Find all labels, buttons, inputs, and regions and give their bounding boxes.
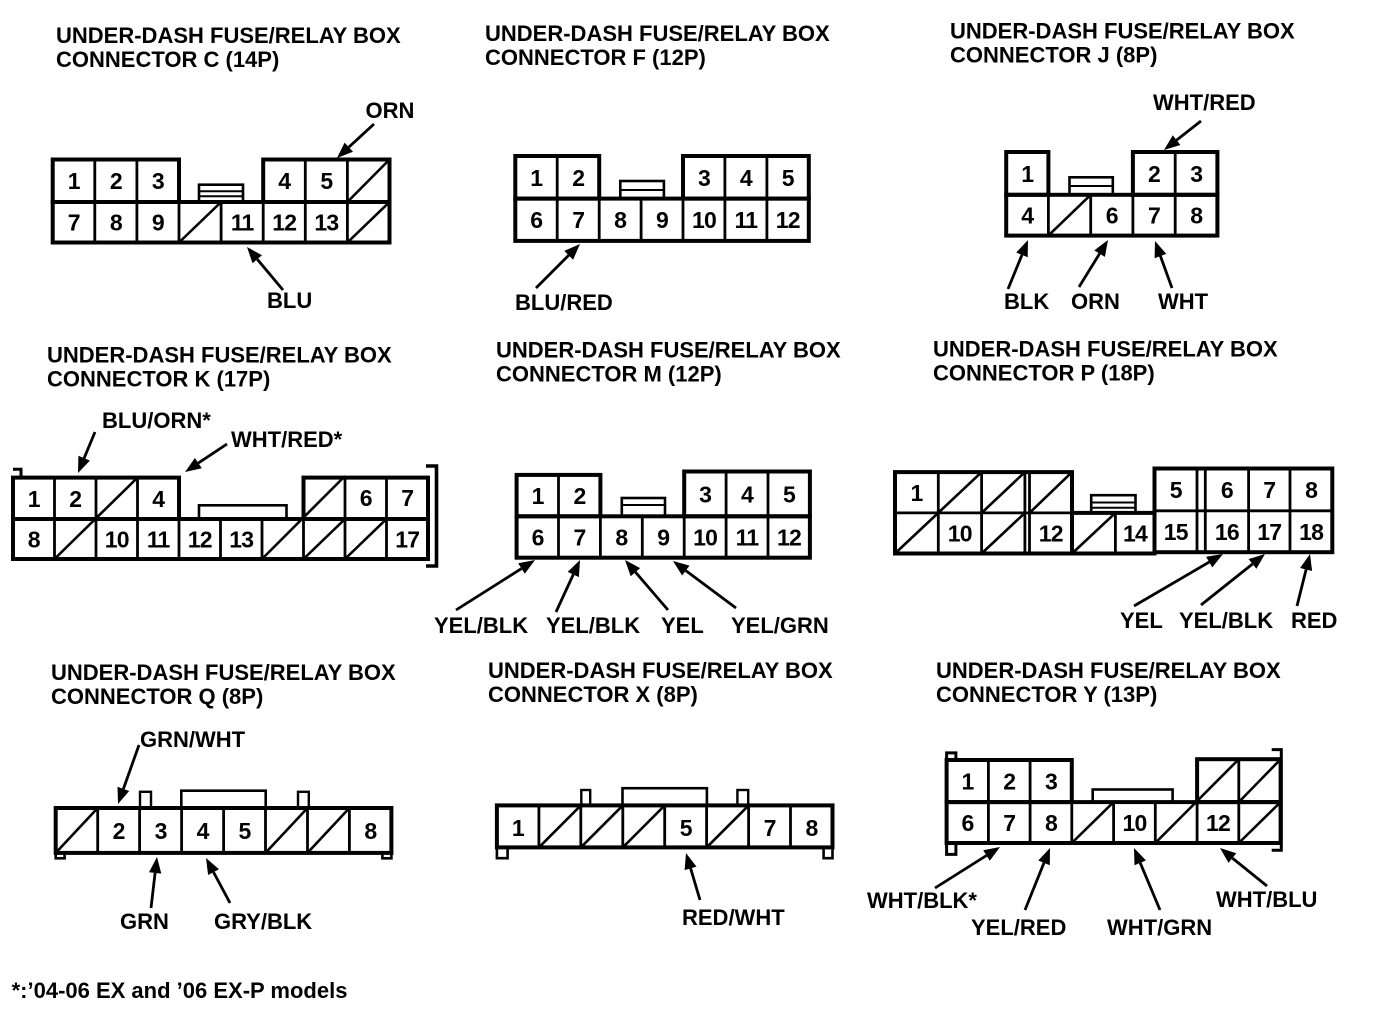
svg-text:7: 7 (572, 207, 584, 233)
svg-text:8: 8 (110, 210, 123, 236)
svg-text:3: 3 (1045, 769, 1057, 795)
svg-text:12: 12 (776, 207, 800, 233)
svg-text:CONNECTOR K (17P): CONNECTOR K (17P) (47, 366, 270, 391)
svg-text:ORN: ORN (366, 98, 415, 123)
svg-text:2: 2 (110, 168, 122, 194)
svg-text:YEL/BLK: YEL/BLK (434, 613, 528, 638)
svg-text:WHT: WHT (1158, 289, 1209, 314)
svg-text:RED/WHT: RED/WHT (682, 905, 785, 930)
svg-text:12: 12 (777, 525, 801, 551)
svg-text:YEL/GRN: YEL/GRN (731, 613, 829, 638)
svg-text:9: 9 (656, 207, 668, 233)
svg-text:YEL/BLK: YEL/BLK (546, 613, 640, 638)
svg-text:10: 10 (693, 525, 717, 551)
svg-text:11: 11 (231, 210, 255, 236)
svg-text:YEL/RED: YEL/RED (971, 915, 1066, 940)
svg-text:8: 8 (615, 525, 628, 551)
svg-text:12: 12 (188, 527, 212, 553)
svg-text:6: 6 (962, 810, 974, 836)
svg-text:7: 7 (1003, 810, 1015, 836)
svg-text:18: 18 (1299, 519, 1324, 545)
svg-text:WHT/BLU: WHT/BLU (1216, 887, 1317, 912)
svg-text:2: 2 (113, 818, 125, 844)
svg-text:6: 6 (532, 525, 544, 551)
svg-text:7: 7 (1148, 203, 1160, 229)
svg-text:6: 6 (530, 207, 542, 233)
svg-text:1: 1 (28, 486, 41, 512)
svg-text:10: 10 (692, 207, 716, 233)
svg-text:9: 9 (657, 525, 669, 551)
svg-text:1: 1 (962, 769, 975, 795)
svg-text:17: 17 (1257, 519, 1281, 545)
svg-text:4: 4 (1021, 203, 1034, 229)
svg-text:17: 17 (395, 527, 419, 553)
svg-text:2: 2 (69, 486, 81, 512)
svg-text:8: 8 (806, 815, 819, 841)
svg-text:5: 5 (1170, 477, 1183, 503)
svg-text:8: 8 (614, 207, 627, 233)
svg-text:UNDER-DASH FUSE/RELAY BOX: UNDER-DASH FUSE/RELAY BOX (47, 343, 392, 368)
svg-text:4: 4 (152, 486, 165, 512)
svg-text:UNDER-DASH FUSE/RELAY BOX: UNDER-DASH FUSE/RELAY BOX (485, 21, 830, 46)
svg-text:1: 1 (1021, 161, 1034, 187)
svg-text:5: 5 (680, 815, 693, 841)
svg-text:5: 5 (320, 168, 333, 194)
svg-text:16: 16 (1215, 519, 1239, 545)
svg-text:GRY/BLK: GRY/BLK (214, 909, 312, 934)
svg-text:CONNECTOR C (14P): CONNECTOR C (14P) (56, 47, 279, 72)
svg-text:8: 8 (1190, 203, 1203, 229)
svg-text:BLU: BLU (267, 288, 312, 313)
svg-text:GRN/WHT: GRN/WHT (140, 727, 246, 752)
svg-text:2: 2 (574, 483, 586, 509)
svg-text:1: 1 (532, 483, 545, 509)
svg-text:7: 7 (764, 815, 776, 841)
svg-text:12: 12 (272, 210, 296, 236)
svg-text:6: 6 (360, 485, 372, 511)
svg-text:10: 10 (948, 521, 972, 547)
svg-text:UNDER-DASH FUSE/RELAY BOX: UNDER-DASH FUSE/RELAY BOX (56, 23, 401, 48)
svg-text:14: 14 (1123, 521, 1148, 547)
svg-text:CONNECTOR X (8P): CONNECTOR X (8P) (488, 682, 698, 707)
svg-text:13: 13 (314, 210, 338, 236)
svg-text:6: 6 (1221, 477, 1233, 503)
svg-text:15: 15 (1164, 519, 1189, 545)
svg-text:CONNECTOR Y (13P): CONNECTOR Y (13P) (936, 682, 1157, 707)
svg-text:4: 4 (278, 168, 291, 194)
svg-text:12: 12 (1206, 810, 1230, 836)
svg-text:9: 9 (152, 210, 164, 236)
svg-text:8: 8 (28, 527, 41, 553)
svg-text:7: 7 (401, 485, 413, 511)
svg-text:UNDER-DASH FUSE/RELAY BOX: UNDER-DASH FUSE/RELAY BOX (950, 19, 1295, 44)
svg-text:GRN: GRN (120, 909, 169, 934)
svg-text:WHT/GRN: WHT/GRN (1107, 915, 1212, 940)
svg-text:7: 7 (68, 210, 80, 236)
svg-text:8: 8 (1045, 810, 1058, 836)
svg-text:UNDER-DASH FUSE/RELAY BOX: UNDER-DASH FUSE/RELAY BOX (933, 337, 1278, 362)
svg-text:UNDER-DASH FUSE/RELAY BOX: UNDER-DASH FUSE/RELAY BOX (496, 338, 841, 363)
svg-text:WHT/BLK*: WHT/BLK* (867, 888, 977, 913)
svg-text:CONNECTOR J (8P): CONNECTOR J (8P) (950, 43, 1157, 68)
svg-text:7: 7 (574, 525, 586, 551)
svg-text:12: 12 (1039, 521, 1063, 547)
svg-text:4: 4 (740, 165, 753, 191)
svg-text:BLK: BLK (1004, 289, 1049, 314)
svg-text:6: 6 (1106, 203, 1118, 229)
svg-text:CONNECTOR F (12P): CONNECTOR F (12P) (485, 45, 706, 70)
svg-text:BLU/RED: BLU/RED (515, 290, 613, 315)
svg-text:YEL/BLK: YEL/BLK (1179, 608, 1273, 633)
svg-text:2: 2 (1003, 769, 1015, 795)
svg-text:10: 10 (105, 527, 129, 553)
svg-text:13: 13 (229, 527, 253, 553)
svg-text:UNDER-DASH FUSE/RELAY BOX: UNDER-DASH FUSE/RELAY BOX (936, 658, 1281, 683)
svg-text:1: 1 (512, 815, 525, 841)
svg-text:WHT/RED: WHT/RED (1153, 90, 1256, 115)
svg-text:CONNECTOR P (18P): CONNECTOR P (18P) (933, 360, 1155, 385)
svg-text:1: 1 (68, 168, 81, 194)
svg-text:WHT/RED*: WHT/RED* (231, 427, 343, 452)
svg-text:*:’04-06 EX and ’06 EX-P model: *:’04-06 EX and ’06 EX-P models (12, 978, 348, 1003)
svg-text:UNDER-DASH FUSE/RELAY BOX: UNDER-DASH FUSE/RELAY BOX (488, 658, 833, 683)
svg-text:YEL: YEL (661, 613, 704, 638)
svg-text:3: 3 (155, 818, 167, 844)
svg-text:4: 4 (741, 481, 754, 507)
svg-text:8: 8 (1305, 477, 1318, 503)
svg-text:10: 10 (1123, 810, 1147, 836)
svg-text:UNDER-DASH FUSE/RELAY BOX: UNDER-DASH FUSE/RELAY BOX (51, 660, 396, 685)
svg-text:CONNECTOR Q (8P): CONNECTOR Q (8P) (51, 684, 263, 709)
svg-text:RED: RED (1291, 608, 1337, 633)
svg-text:3: 3 (698, 165, 710, 191)
svg-text:5: 5 (782, 165, 795, 191)
svg-text:5: 5 (239, 818, 252, 844)
svg-text:1: 1 (530, 165, 543, 191)
svg-text:BLU/ORN*: BLU/ORN* (102, 408, 211, 433)
svg-text:5: 5 (783, 481, 796, 507)
svg-text:3: 3 (1190, 161, 1202, 187)
svg-text:3: 3 (699, 481, 711, 507)
svg-text:7: 7 (1263, 477, 1275, 503)
svg-text:ORN: ORN (1071, 289, 1120, 314)
svg-text:YEL: YEL (1120, 608, 1163, 633)
svg-text:11: 11 (736, 525, 760, 551)
svg-text:2: 2 (1148, 161, 1160, 187)
svg-text:8: 8 (364, 818, 377, 844)
svg-text:4: 4 (197, 818, 210, 844)
svg-text:CONNECTOR M (12P): CONNECTOR M (12P) (496, 361, 722, 386)
svg-text:11: 11 (147, 527, 171, 553)
svg-text:1: 1 (911, 480, 924, 506)
svg-text:11: 11 (735, 207, 759, 233)
svg-text:3: 3 (152, 168, 164, 194)
svg-text:2: 2 (572, 165, 584, 191)
